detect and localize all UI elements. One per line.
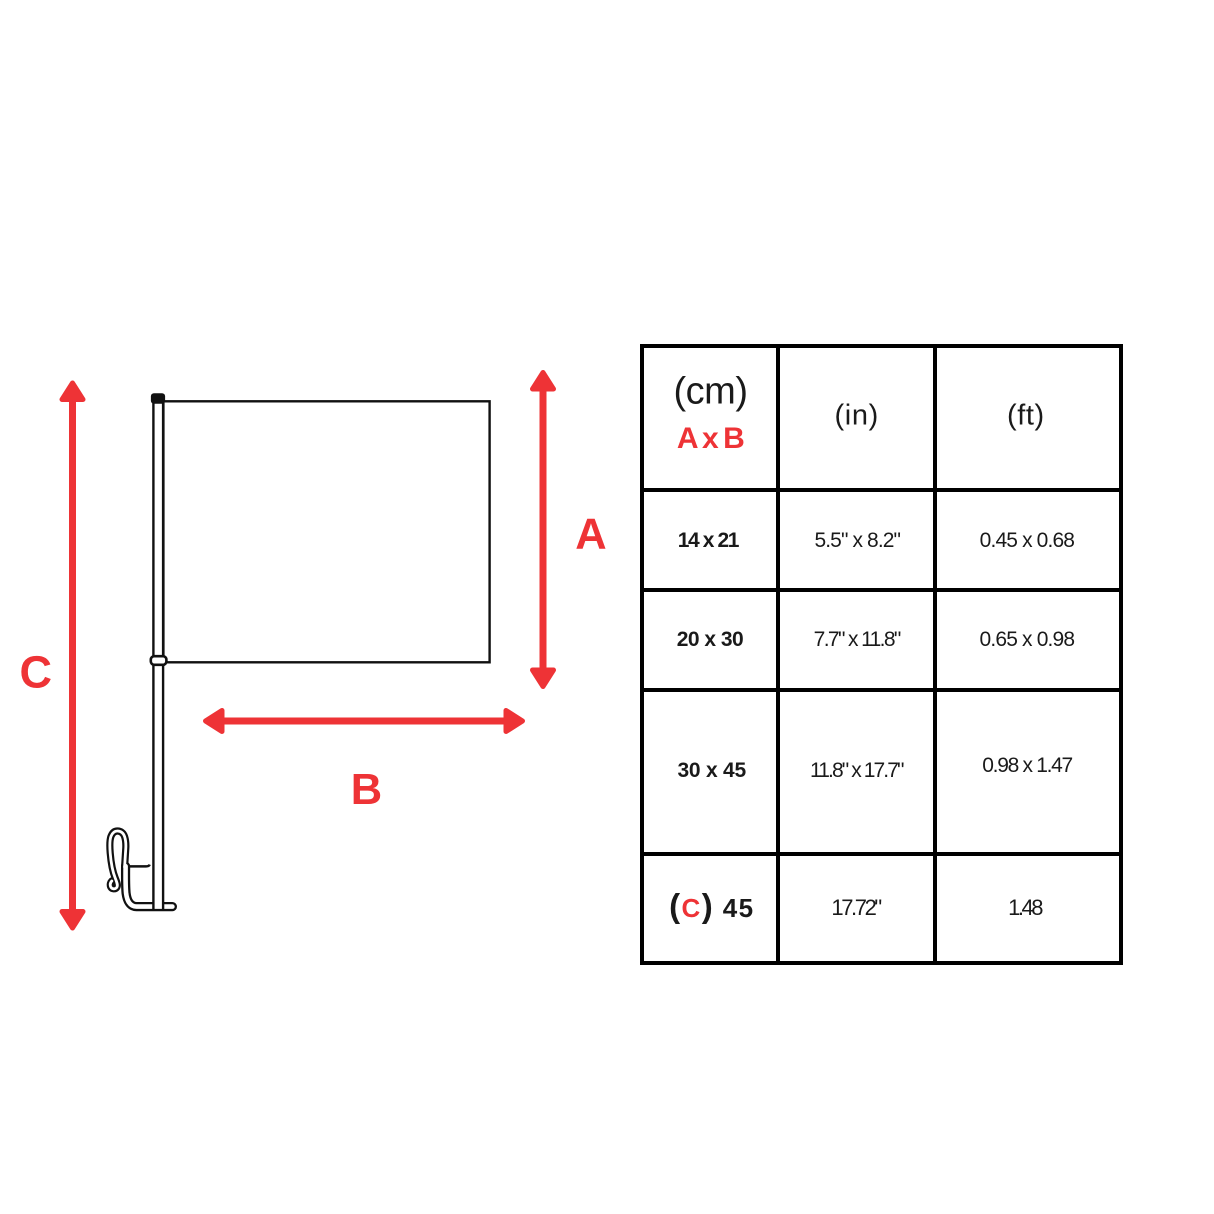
- svg-text:A: A: [575, 510, 606, 558]
- svg-text:B: B: [351, 766, 382, 814]
- svg-text:C: C: [19, 646, 52, 697]
